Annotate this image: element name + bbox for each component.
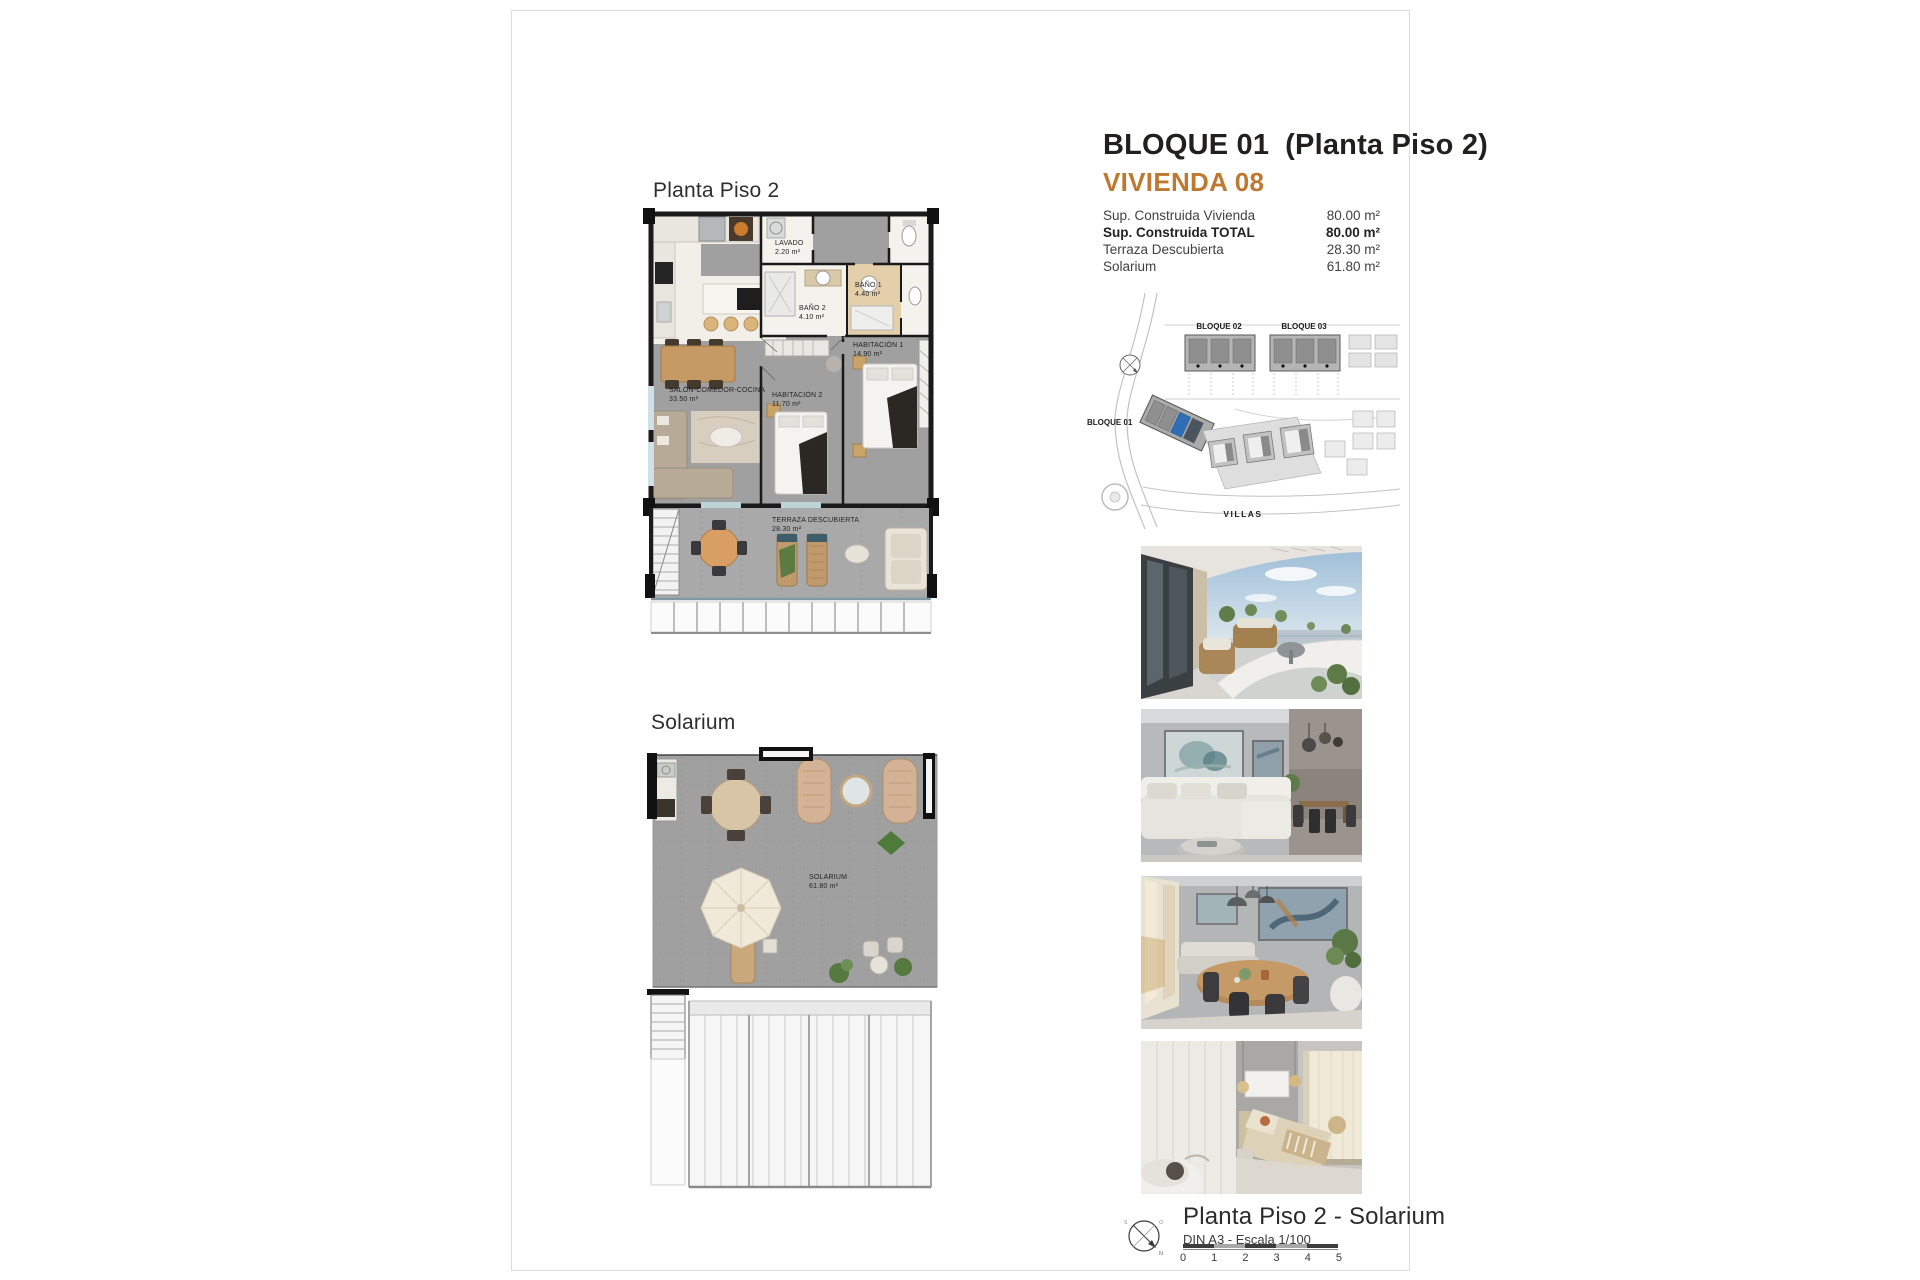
site-label-bloque01: BLOQUE 01 [1087,418,1133,427]
block-name: BLOQUE 01 [1103,129,1269,161]
floor-plan-illustration [641,206,941,639]
unit-title: VIVIENDA 08 [1103,167,1264,198]
site-label-villas: VILLAS [1223,509,1262,519]
room-label-terraza: TERRAZA DESCUBIERTA 28.30 m² [772,517,859,534]
site-plan-illustration: BLOQUE 02 BLOQUE 03 BLOQUE 01 VILLAS [1085,291,1400,531]
room-label-habitacion2: HABITACIÓN 2 11.70 m² [772,392,823,409]
footer-title: Planta Piso 2 - Solarium [1183,1203,1445,1231]
solarium-plan-illustration [641,743,941,1193]
photo-bedroom [1141,1041,1362,1194]
room-label-habitacion1: HABITACIÓN 1 14.90 m² [853,342,904,359]
table-row: Terraza Descubierta 28.30 m² [1103,241,1380,258]
footer-compass: O S N [1119,1211,1169,1261]
site-label-bloque03: BLOQUE 03 [1281,322,1327,331]
photo-terrace [1141,546,1362,699]
room-label-lavado: LAVADO 2.20 m² [775,240,804,257]
site-label-bloque02: BLOQUE 02 [1196,322,1242,331]
room-label-bano2: BAÑO 2 4.10 m² [799,305,826,322]
block-floor-note: (Planta Piso 2) [1285,129,1488,161]
living-room-photo-illustration [1141,709,1362,862]
terrace-photo-illustration [1141,546,1362,699]
plan-sheet-page: Planta Piso 2 [511,10,1410,1271]
room-label-salon: SALÓN-COMEDOR-COCINA 33.50 m² [669,387,765,404]
scale-baseline [1183,1249,1338,1250]
svg-text:N: N [1159,1251,1163,1257]
svg-text:S: S [1124,1220,1128,1226]
bedroom-photo-illustration [1141,1041,1362,1194]
dining-area-photo-illustration [1141,876,1362,1029]
svg-text:O: O [1159,1220,1163,1226]
block-title: BLOQUE 01(Planta Piso 2) [1103,129,1488,162]
photo-dining-area [1141,876,1362,1029]
table-row: Sup. Construida Vivienda 80.00 m² [1103,207,1380,224]
room-label-solarium: SOLARIUM 61.80 m² [809,874,847,891]
floor-plan-drawing: LAVADO 2.20 m² BAÑO 2 4.10 m² BAÑO 1 4.4… [641,206,941,639]
scale-bar [1183,1244,1338,1248]
room-label-bano1: BAÑO 1 4.40 m² [855,282,882,299]
floor-plan-title: Planta Piso 2 [653,179,779,203]
table-row: Solarium 61.80 m² [1103,258,1380,275]
table-row: Sup. Construida TOTAL 80.00 m² [1103,224,1380,241]
solarium-plan-drawing: SOLARIUM 61.80 m² [641,743,941,1193]
scale-numbers: 0 1 2 3 4 5 [1178,1252,1344,1264]
site-compass-icon [1120,355,1140,375]
compass-icon: O S N [1119,1211,1169,1261]
areas-table: Sup. Construida Vivienda 80.00 m² Sup. C… [1103,207,1380,275]
photo-living-room [1141,709,1362,862]
solarium-plan-title: Solarium [651,711,735,735]
site-plan: BLOQUE 02 BLOQUE 03 BLOQUE 01 VILLAS [1085,291,1400,531]
